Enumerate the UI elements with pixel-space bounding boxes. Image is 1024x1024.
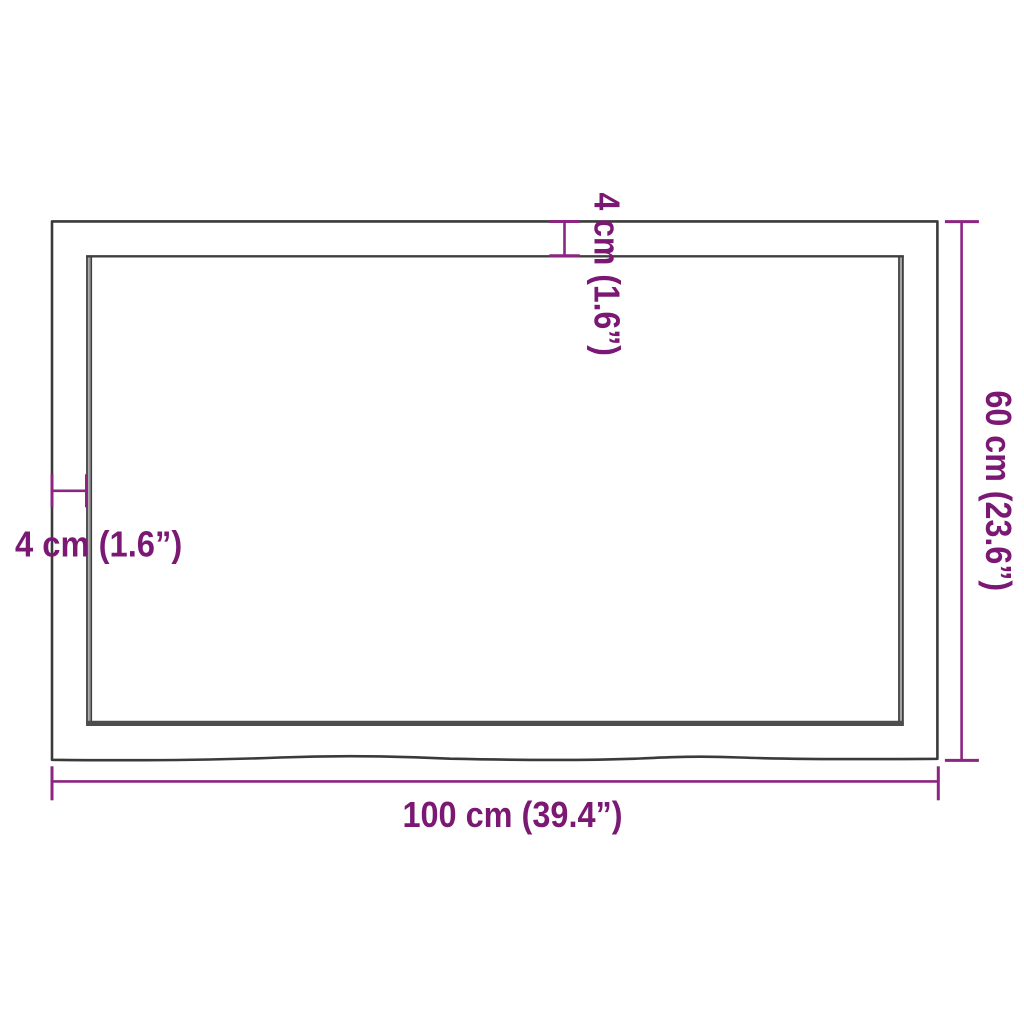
svg-text:4 cm (1.6”): 4 cm (1.6”) bbox=[15, 525, 182, 565]
svg-text:4 cm (1.6”): 4 cm (1.6”) bbox=[586, 192, 626, 355]
svg-text:60 cm (23.6”): 60 cm (23.6”) bbox=[978, 390, 1018, 591]
svg-text:100 cm (39.4”): 100 cm (39.4”) bbox=[402, 795, 622, 835]
